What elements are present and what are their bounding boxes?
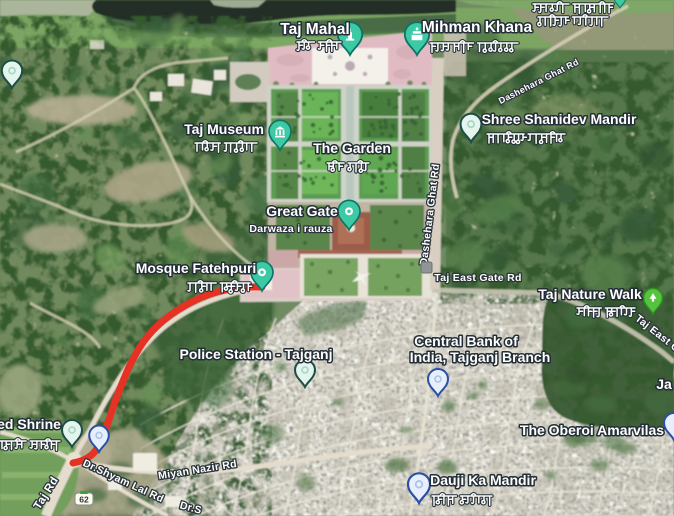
svg-text:Taj Museum: Taj Museum: [184, 121, 264, 137]
svg-text:Dauji Ka Mandir: Dauji Ka Mandir: [430, 472, 536, 488]
svg-text:Ja: Ja: [656, 376, 672, 392]
svg-text:The Oberoi Amarvilas: The Oberoi Amarvilas: [520, 422, 664, 438]
svg-text:India, Tajganj Branch: India, Tajganj Branch: [410, 349, 551, 365]
svg-text:The Garden: The Garden: [313, 140, 391, 156]
svg-text:ed Shrine: ed Shrine: [0, 416, 61, 432]
svg-text:Darwaza i rauza: Darwaza i rauza: [249, 223, 332, 235]
svg-text:Great Gate: Great Gate: [266, 203, 338, 219]
svg-text:Shree Shanidev Mandir: Shree Shanidev Mandir: [482, 111, 637, 127]
svg-text:62: 62: [79, 495, 89, 505]
svg-text:Police Station - Tajganj: Police Station - Tajganj: [180, 346, 333, 362]
svg-text:Mosque Fatehpuri: Mosque Fatehpuri: [136, 260, 257, 276]
svg-text:Taj Nature Walk: Taj Nature Walk: [538, 286, 642, 302]
svg-text:Taj Mahal: Taj Mahal: [280, 21, 349, 38]
svg-text:Central Bank of: Central Bank of: [414, 333, 518, 349]
svg-text:Taj East Gate Rd: Taj East Gate Rd: [434, 272, 521, 284]
svg-text:Mihman Khana: Mihman Khana: [422, 19, 533, 36]
